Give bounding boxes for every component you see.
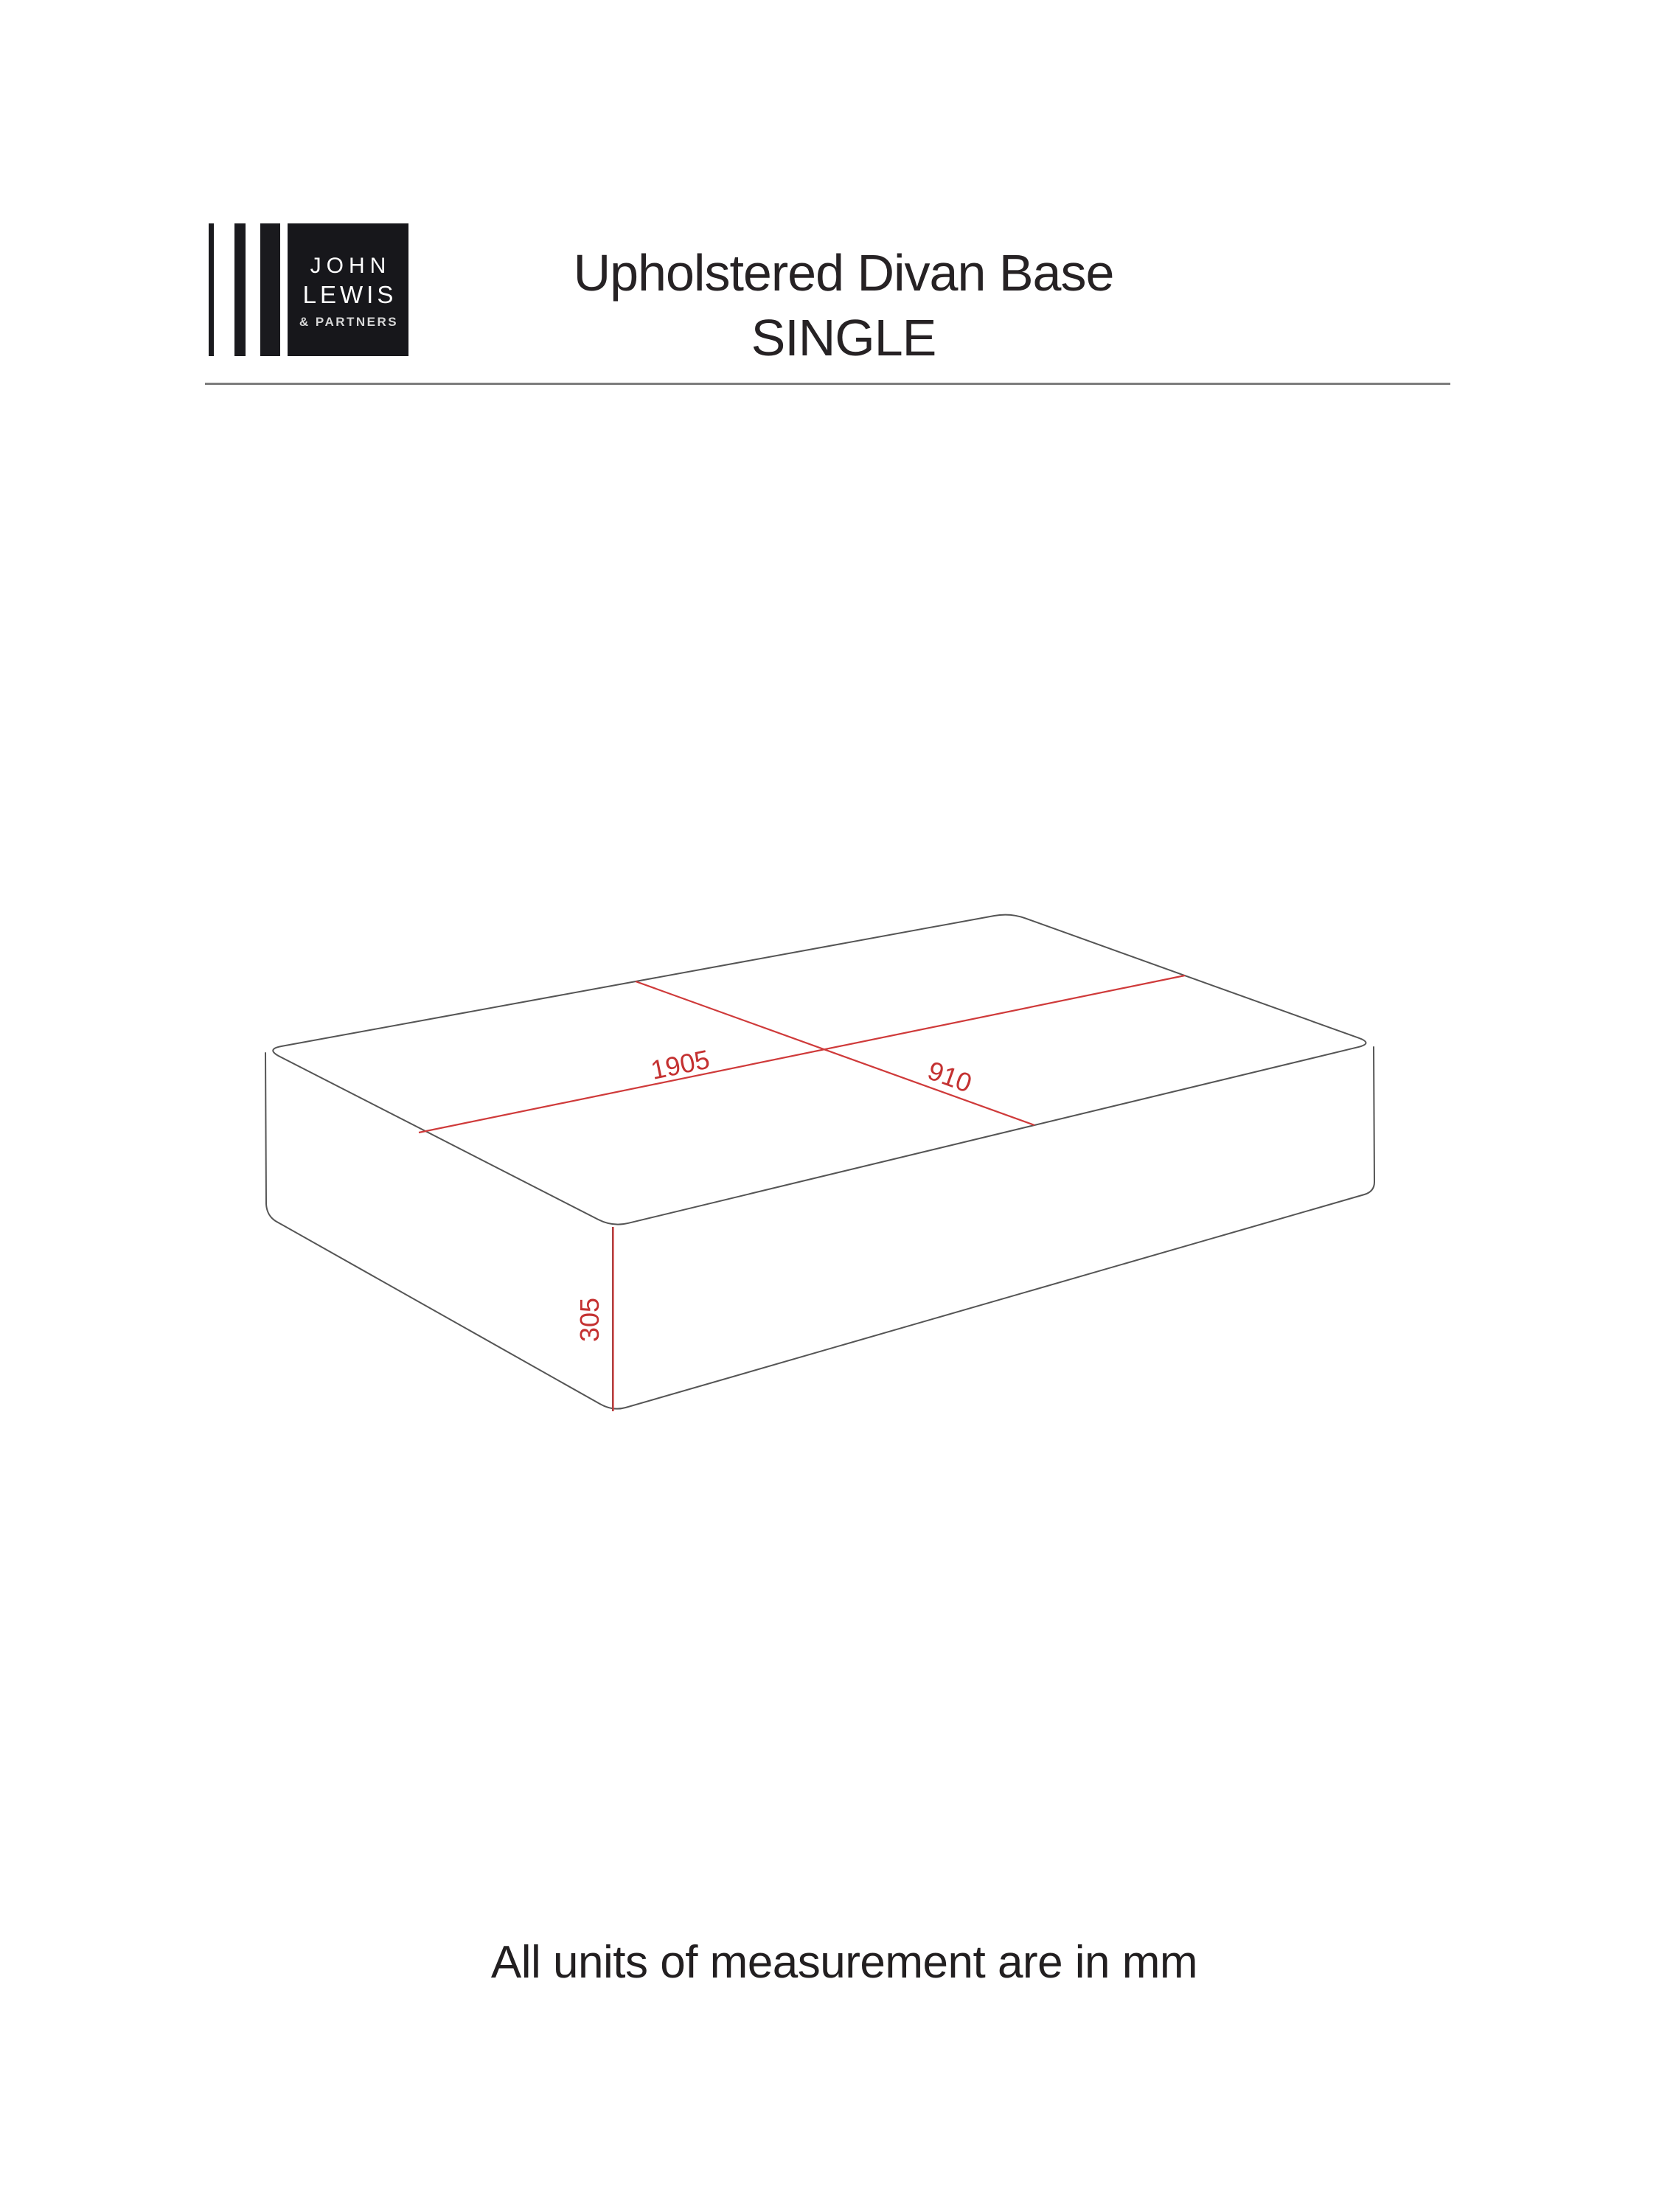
units-note: All units of measurement are in mm — [461, 1933, 1228, 1992]
height-dimension-label: 305 — [574, 1298, 605, 1342]
divan-top-face — [273, 915, 1366, 1225]
divan-dimension-drawing: 1905 910 305 — [0, 0, 1659, 2212]
page: JOHN LEWIS & PARTNERS Upholstered Divan … — [0, 0, 1659, 2212]
